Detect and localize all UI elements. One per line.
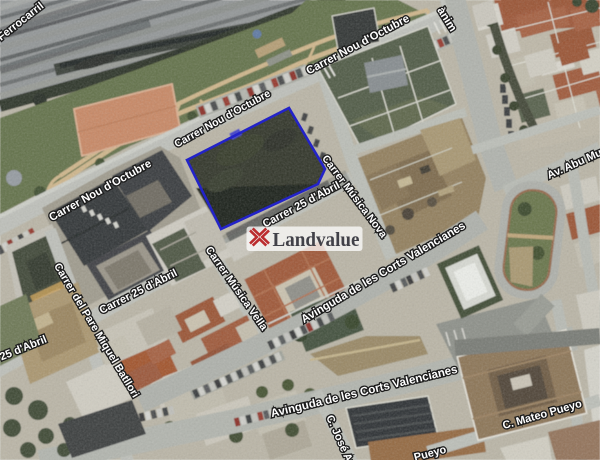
svg-text:Landvalue: Landvalue [273, 229, 360, 251]
